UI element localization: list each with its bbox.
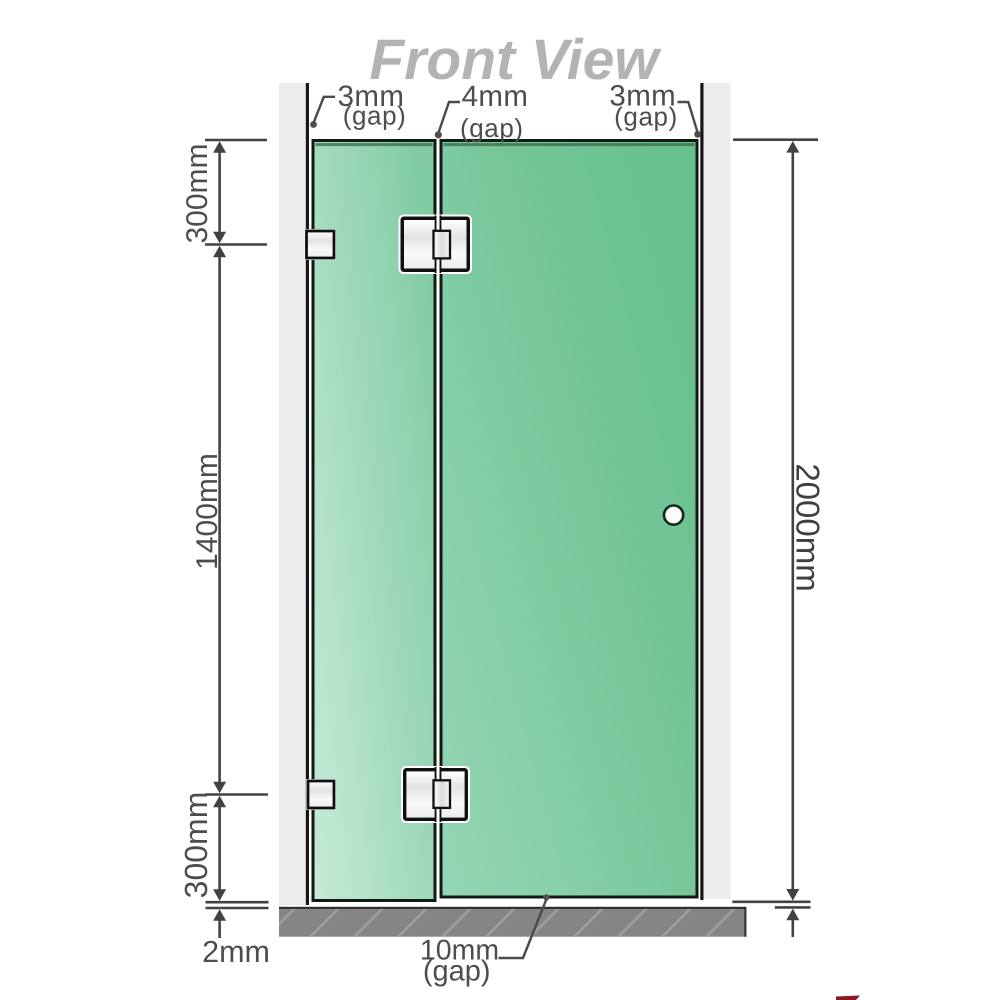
svg-text:2000mm: 2000mm xyxy=(790,463,827,591)
svg-text:1400mm: 1400mm xyxy=(191,453,224,570)
svg-text:2mm: 2mm xyxy=(202,935,270,969)
svg-text:4mm: 4mm xyxy=(462,80,529,113)
svg-text:(gap): (gap) xyxy=(343,101,407,131)
svg-text:(gap): (gap) xyxy=(423,956,491,988)
svg-text:300mm: 300mm xyxy=(181,143,214,243)
svg-text:(gap): (gap) xyxy=(460,113,524,143)
svg-text:(gap): (gap) xyxy=(614,102,678,132)
svg-text:300mm: 300mm xyxy=(178,792,214,899)
